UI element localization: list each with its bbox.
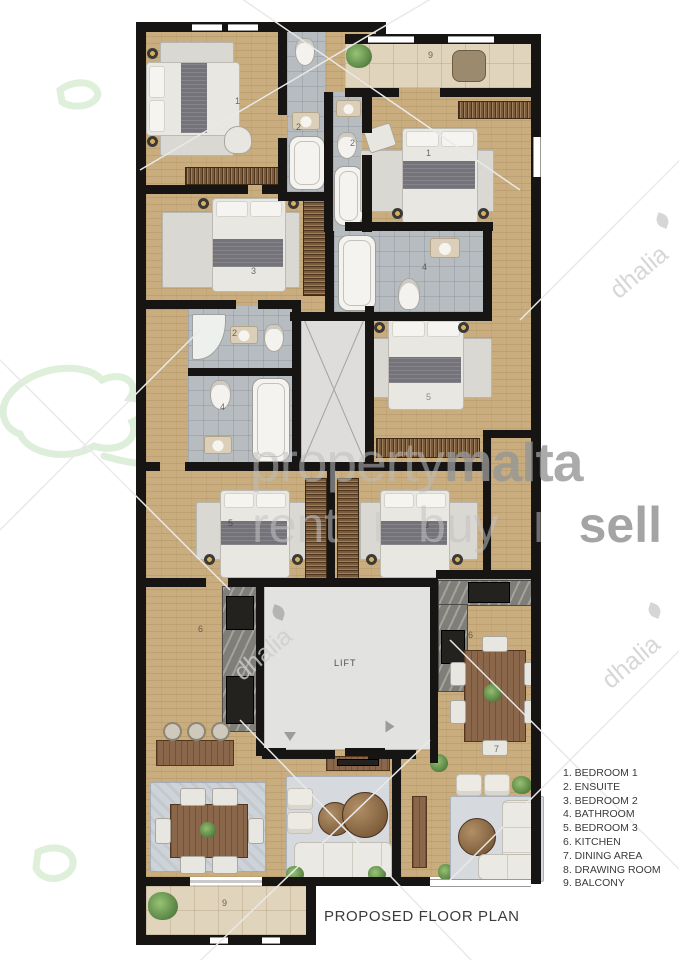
dining-chair <box>180 788 206 806</box>
room-number-dining-right: 7 <box>494 744 499 754</box>
table-centerpiece-plant <box>484 684 502 702</box>
window <box>262 937 280 944</box>
bar-stool <box>163 722 182 741</box>
bathtub <box>334 166 363 226</box>
room-number-ensuite-mid: 2 <box>232 328 237 338</box>
room-number-kitchen-right: 6 <box>468 630 473 640</box>
armchair <box>456 774 482 796</box>
wall-segment <box>136 22 146 945</box>
dining-chair <box>180 856 206 874</box>
bed-bedroom2-left <box>212 198 286 292</box>
floor-plan-canvas: LIFT <box>0 0 679 960</box>
bedside-lamp <box>374 322 385 333</box>
bedside-lamp <box>392 208 403 219</box>
dhalia-leaf-icon <box>654 212 671 229</box>
wall-segment <box>278 22 287 115</box>
legend-item: 3. BEDROOM 2 <box>563 795 661 809</box>
wall-segment <box>362 92 372 133</box>
sofa <box>478 854 538 880</box>
coffee-table <box>458 818 496 856</box>
wall-segment <box>278 192 333 201</box>
legend-item: 9. BALCONY <box>563 877 661 891</box>
toilet <box>264 324 284 352</box>
wall-segment <box>440 88 531 97</box>
room-number-balcony-top: 9 <box>428 50 433 60</box>
wall-segment <box>262 750 335 759</box>
armchair <box>287 812 313 834</box>
page-title: PROPOSED FLOOR PLAN <box>324 908 520 925</box>
wall-segment <box>256 578 264 756</box>
bar-stool <box>187 722 206 741</box>
sideboard <box>412 796 427 868</box>
dhalia-leaf-icon <box>646 602 663 619</box>
sink <box>430 238 460 258</box>
room-number-ensuite-left-b: 2 <box>350 138 355 148</box>
wall-segment <box>483 231 492 321</box>
legend-item: 5. BEDROOM 3 <box>563 822 661 836</box>
wall-segment <box>136 300 236 309</box>
dining-chair <box>155 818 171 844</box>
wall-segment <box>188 368 292 376</box>
legend-item: 2. ENSUITE <box>563 781 661 795</box>
bedside-lamp <box>204 554 215 565</box>
window <box>192 24 222 31</box>
watermark-word-sell: sell <box>579 496 662 554</box>
room-number-bedroom3-mid-right: 5 <box>426 392 431 402</box>
wall-segment <box>345 222 493 231</box>
wall-segment <box>362 155 372 232</box>
cooktop <box>441 630 465 664</box>
bedside-lamp <box>292 554 303 565</box>
bar-stool <box>211 722 230 741</box>
legend-item: 8. DRAWING ROOM <box>563 864 661 878</box>
legend-item: 4. BATHROOM <box>563 808 661 822</box>
wall-segment <box>292 306 301 468</box>
bedside-lamp <box>147 48 158 59</box>
bedside-lamp <box>478 208 489 219</box>
wall-segment <box>324 92 333 232</box>
wall-segment <box>365 306 374 468</box>
kitchen-sink-unit <box>226 676 254 724</box>
wall-segment <box>185 462 366 471</box>
room-number-bedroom2-right: 3 <box>424 520 429 530</box>
wall-segment <box>483 430 491 578</box>
wall-segment <box>436 570 541 579</box>
dining-chair <box>450 700 466 724</box>
wall-segment <box>262 877 430 886</box>
wall-segment <box>430 578 438 713</box>
stove <box>226 596 254 630</box>
toilet <box>295 38 315 66</box>
bed-bedroom2-right <box>380 490 450 578</box>
sink <box>204 436 232 454</box>
wall-segment <box>262 185 282 194</box>
wall-segment <box>136 578 206 587</box>
room-number-kitchen-left: 6 <box>198 624 203 634</box>
wall-segment <box>290 312 491 321</box>
legend-item: 6. KITCHEN <box>563 836 661 850</box>
wall-segment <box>136 185 248 194</box>
bedside-lamp <box>147 136 158 147</box>
coffee-table <box>342 792 388 838</box>
bathtub <box>289 136 325 190</box>
room-number-bedroom1-right: 1 <box>426 148 431 158</box>
room-number-bedroom3-left: 5 <box>228 518 233 528</box>
breakfast-bar <box>156 740 234 766</box>
legend: 1. BEDROOM 1 2. ENSUITE 3. BEDROOM 2 4. … <box>563 767 661 891</box>
room-number-balcony-bottom: 9 <box>222 898 227 908</box>
balcony-top <box>345 44 531 88</box>
wall-segment <box>345 88 399 97</box>
armchair <box>484 774 510 796</box>
room-number-bedroom1-left: 1 <box>235 96 240 106</box>
lift-door-marker <box>284 732 296 741</box>
legend-item: 7. DINING AREA <box>563 850 661 864</box>
wall-segment <box>136 877 190 886</box>
void-shaft <box>301 315 367 464</box>
wall-segment <box>136 462 160 471</box>
wardrobe <box>458 101 536 119</box>
wall-segment <box>392 750 401 880</box>
watermark-agency: dhalia <box>604 240 674 305</box>
room-number-bedroom2-left: 3 <box>251 266 256 276</box>
bedside-lamp <box>366 554 377 565</box>
bed-bedroom1-right <box>402 128 478 224</box>
window <box>448 36 494 43</box>
wall-segment <box>306 885 316 940</box>
window <box>210 937 228 944</box>
window <box>533 137 541 177</box>
wardrobe <box>185 167 285 185</box>
bedroom-chair <box>224 126 252 154</box>
dining-chair <box>450 662 466 686</box>
dining-chair <box>248 818 264 844</box>
dining-chair <box>482 636 508 652</box>
plant <box>346 44 372 68</box>
bedside-lamp <box>452 554 463 565</box>
bed-bedroom3-left <box>220 490 290 578</box>
dining-chair <box>212 856 238 874</box>
window <box>228 24 258 31</box>
wall-segment <box>365 462 491 471</box>
room-number-bathroom-right: 4 <box>422 262 427 272</box>
bathtub <box>252 378 290 462</box>
sink <box>336 100 361 117</box>
bedside-lamp <box>458 322 469 333</box>
sliding-door <box>190 880 262 883</box>
tv <box>337 759 379 766</box>
lift-door-marker <box>386 721 395 733</box>
wall-segment <box>430 713 438 763</box>
room-number-ensuite-left-a: 2 <box>296 122 301 132</box>
armchair <box>287 788 313 810</box>
room-number-bathroom-mid: 4 <box>220 402 225 412</box>
wardrobe <box>337 478 359 580</box>
watermark-agency: dhalia <box>596 630 666 695</box>
wall-segment <box>325 231 334 321</box>
legend-item: 1. BEDROOM 1 <box>563 767 661 781</box>
plant <box>512 776 532 794</box>
lift-shaft <box>264 586 432 750</box>
lift-label: LIFT <box>334 658 357 668</box>
bathtub <box>338 235 376 311</box>
toilet <box>398 278 420 310</box>
kitchen-sink-unit <box>468 582 510 603</box>
void-cross-lines <box>302 316 366 463</box>
wardrobe <box>376 438 480 458</box>
plant <box>148 892 178 920</box>
wall-segment <box>136 22 386 32</box>
bed-bedroom1-left <box>146 62 240 136</box>
dining-chair <box>212 788 238 806</box>
window <box>368 36 414 43</box>
table-centerpiece-plant <box>200 822 216 838</box>
bedside-lamp <box>198 198 209 209</box>
wardrobe <box>305 478 327 580</box>
window <box>430 879 531 887</box>
wicker-chair <box>452 50 486 82</box>
wall-segment <box>327 470 335 578</box>
